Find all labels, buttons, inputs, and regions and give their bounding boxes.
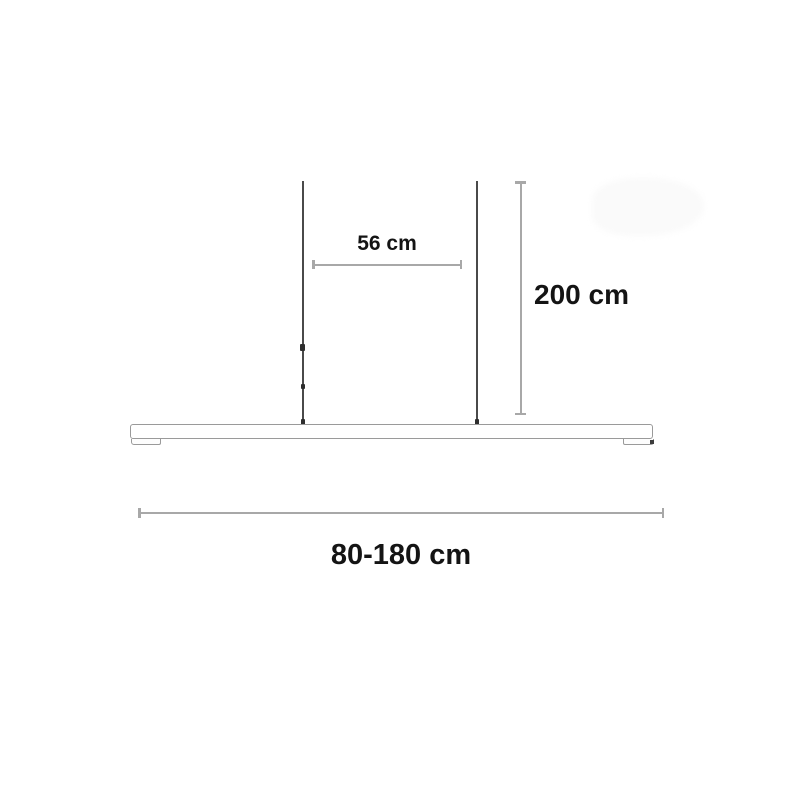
dimension-line <box>138 512 664 514</box>
dimension-tick <box>662 508 665 518</box>
suspension-cable-right <box>476 181 478 425</box>
cable-spacing-label: 56 cm <box>312 233 462 255</box>
lamp-bar <box>130 424 653 439</box>
background-smudge <box>592 178 704 236</box>
dimension-tick <box>312 260 315 269</box>
dimension-diagram: 56 cm 200 cm 80-180 cm <box>0 0 800 800</box>
width-range-label: 80-180 cm <box>138 540 664 570</box>
dimension-tick <box>515 181 526 184</box>
cable-adjuster-lower <box>301 384 305 389</box>
dimension-line <box>312 264 462 266</box>
dimension-tick <box>460 260 463 269</box>
dimension-tick <box>515 413 526 416</box>
suspension-height-label: 200 cm <box>534 280 629 309</box>
lamp-bar-endcap-nub <box>650 440 654 444</box>
dimension-line-width-range <box>138 508 664 518</box>
dimension-line-suspension-height <box>515 181 526 415</box>
dimension-line-cable-spacing <box>312 260 462 269</box>
dimension-tick <box>138 508 141 518</box>
lamp-bar-endcap-left <box>131 439 161 445</box>
cable-adjuster-upper <box>300 344 305 351</box>
dimension-line <box>520 181 522 415</box>
